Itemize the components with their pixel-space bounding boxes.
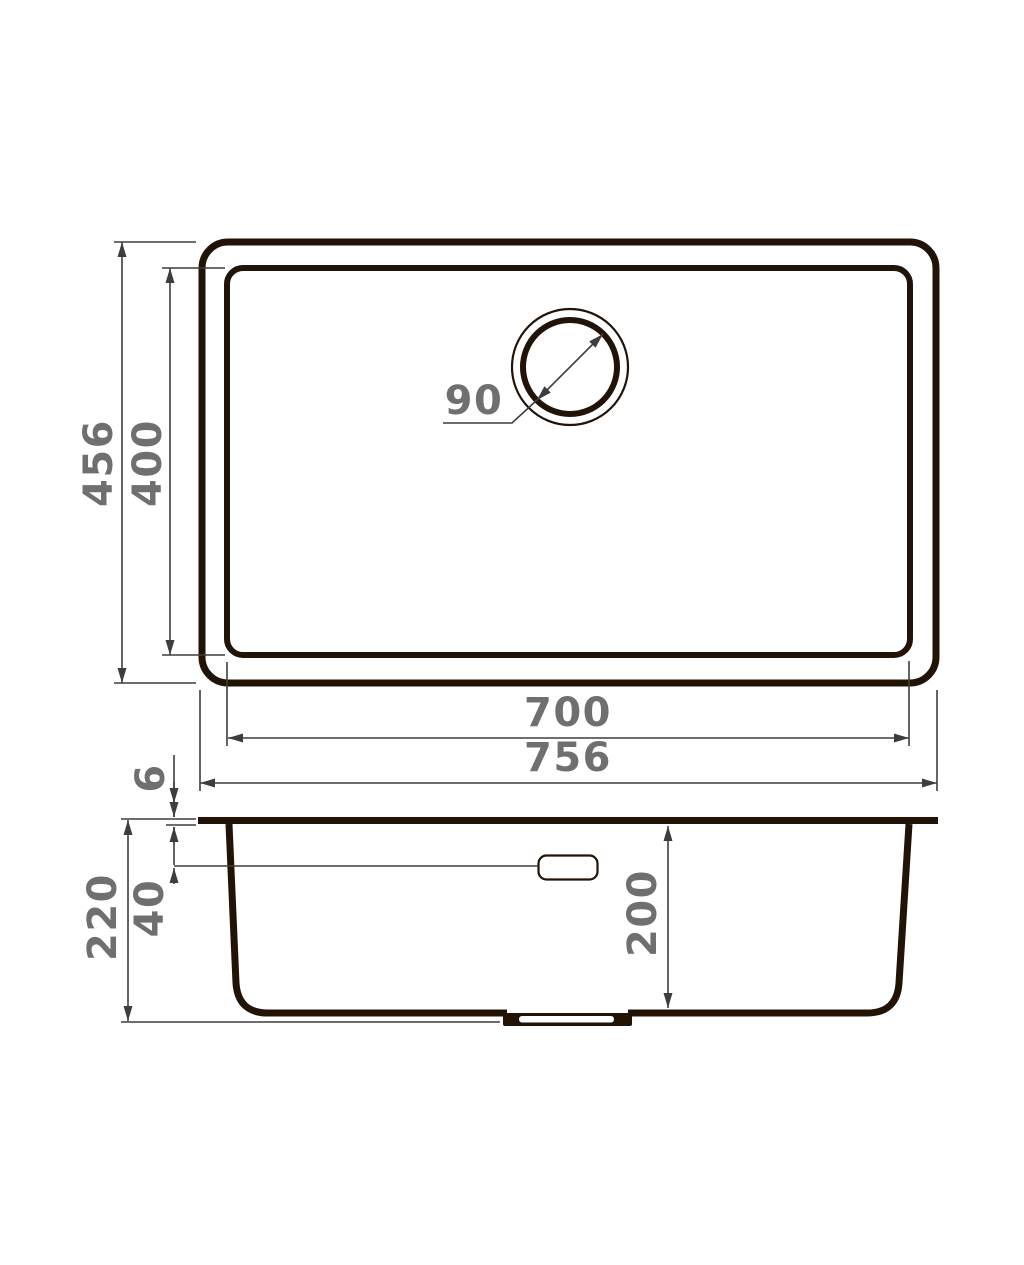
dim-label-outer-width: 756 [524, 735, 612, 781]
dim-label-overflow-offset: 40 [127, 879, 173, 938]
drawing-canvas: 90 456 400 700 756 [0, 0, 1024, 1265]
dim-label-bowl-height: 200 [620, 869, 666, 957]
dim-label-total-height: 220 [80, 873, 126, 961]
dim-label-bowl-width: 700 [524, 690, 612, 736]
dim-label-drain-diameter: 90 [445, 378, 504, 424]
side-view-dimensions: 6 40 220 200 [80, 755, 668, 1022]
overflow-opening [539, 856, 598, 880]
drain-flange-slot [519, 1016, 614, 1023]
side-view [174, 821, 938, 1027]
top-view: 90 [202, 242, 936, 683]
dim-label-outer-depth: 456 [76, 419, 122, 507]
drain-diameter-arrow [537, 334, 603, 400]
sink-dimension-drawing: 90 456 400 700 756 [0, 0, 1024, 1265]
side-view-bowl-shell [229, 824, 909, 1013]
top-view-bowl-edge [227, 268, 910, 655]
dim-label-rim-thickness: 6 [128, 763, 174, 792]
dim-label-bowl-depth: 400 [125, 419, 171, 507]
